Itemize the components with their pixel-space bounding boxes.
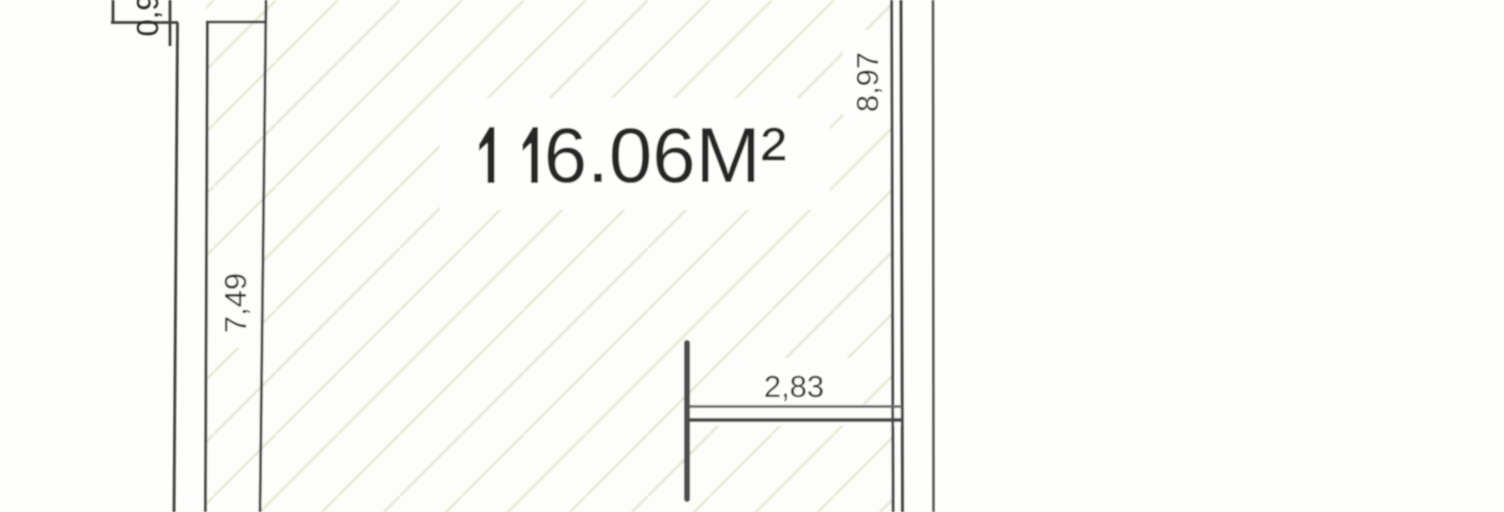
svg-text:8,97: 8,97 (850, 52, 885, 112)
svg-text:0,9: 0,9 (130, 0, 165, 37)
svg-text:6.06M²: 6.06M² (544, 111, 787, 199)
svg-text:2,83: 2,83 (764, 369, 824, 404)
svg-text:7,49: 7,49 (218, 273, 253, 333)
